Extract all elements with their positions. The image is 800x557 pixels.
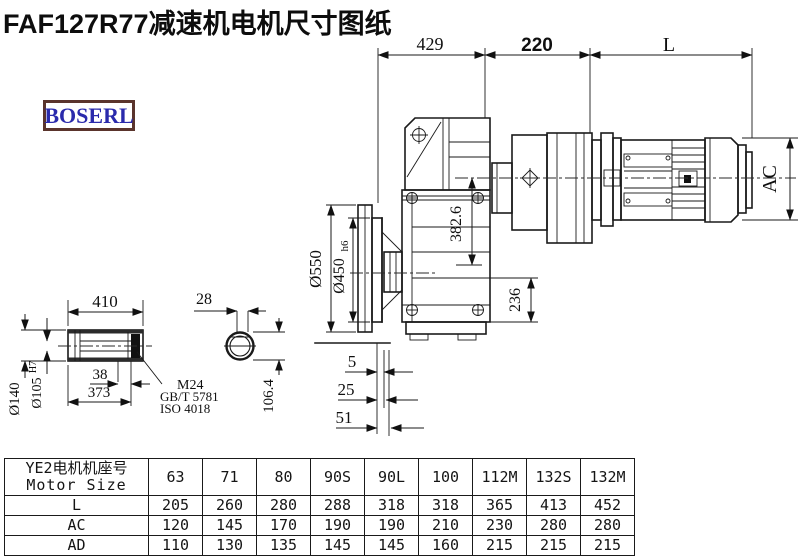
dim-25-label: 25 — [338, 380, 355, 399]
table-cell: 260 — [203, 496, 257, 516]
table-cell: 280 — [581, 516, 635, 536]
gearbox-housing — [350, 118, 490, 340]
drawing-page: FAF127R77减速机电机尺寸图纸 BOSERL 429 220 L — [0, 0, 800, 557]
table-cell: 190 — [365, 516, 419, 536]
dim-140-label: Ø140 — [7, 382, 23, 415]
table-cell: 230 — [473, 516, 527, 536]
header-cn: YE2电机机座号 — [5, 460, 148, 477]
row-label: AD — [5, 536, 149, 556]
dim-ac-label: AC — [759, 165, 781, 193]
dim-105-tolerance: H7 — [28, 361, 39, 373]
dim-429-label: 429 — [417, 34, 444, 54]
column-header: 112M — [473, 459, 527, 496]
column-header: 90L — [365, 459, 419, 496]
motor-adapter — [492, 133, 620, 243]
dim-105-label: Ø105 — [30, 377, 45, 408]
dim-106-label: 106.4 — [261, 379, 277, 413]
header-en: Motor Size — [5, 477, 148, 494]
dim-550-label: Ø550 — [306, 250, 325, 288]
dim-236: 236 — [486, 278, 538, 322]
table-cell: 452 — [581, 496, 635, 516]
dim-410-label: 410 — [92, 292, 118, 311]
table-cell: 288 — [311, 496, 365, 516]
table-cell: 205 — [149, 496, 203, 516]
dim-5-label: 5 — [348, 352, 357, 371]
dim-L-label: L — [663, 34, 675, 56]
table-cell: 280 — [257, 496, 311, 516]
table-cell: 365 — [473, 496, 527, 516]
table-cell: 190 — [311, 516, 365, 536]
dim-flange-spigot: Ø450 h6 — [331, 218, 370, 322]
motor-size-table: YE2电机机座号 Motor Size 63 71 80 90S 90L 100… — [4, 458, 635, 556]
thread-callout-iso: ISO 4018 — [160, 401, 210, 416]
table-cell: 145 — [365, 536, 419, 556]
table-row-L: L 205 260 280 288 318 318 365 413 452 — [5, 496, 635, 516]
dim-382-label: 382.6 — [448, 206, 465, 242]
table-row-AD: AD 110 130 135 145 145 160 215 215 215 — [5, 536, 635, 556]
table-header-row: YE2电机机座号 Motor Size 63 71 80 90S 90L 100… — [5, 459, 635, 496]
table-cell: 318 — [365, 496, 419, 516]
dim-373-label: 373 — [88, 385, 111, 401]
table-cell: 145 — [311, 536, 365, 556]
column-header: 100 — [419, 459, 473, 496]
table-cell: 120 — [149, 516, 203, 536]
column-header: 90S — [311, 459, 365, 496]
dims-bottom-offsets: 5 25 51 — [315, 343, 424, 436]
dim-38-label: 38 — [93, 367, 108, 383]
dim-220-label: 220 — [521, 35, 553, 56]
table-row-AC: AC 120 145 170 190 190 210 230 280 280 — [5, 516, 635, 536]
table-cell: 135 — [257, 536, 311, 556]
column-header: 132S — [527, 459, 581, 496]
column-header: 132M — [581, 459, 635, 496]
table-cell: 413 — [527, 496, 581, 516]
column-header: 71 — [203, 459, 257, 496]
table-cell: 145 — [203, 516, 257, 536]
dim-28-label: 28 — [196, 291, 212, 308]
column-header: 80 — [257, 459, 311, 496]
table-cell: 210 — [419, 516, 473, 536]
hollow-shaft-detail: 410 Ø140 Ø105 H7 38 — [7, 292, 219, 416]
column-header: 63 — [149, 459, 203, 496]
row-label: L — [5, 496, 149, 516]
row-label: AC — [5, 516, 149, 536]
dim-51-label: 51 — [336, 408, 353, 427]
table-cell: 280 — [527, 516, 581, 536]
dim-450-tolerance: h6 — [339, 240, 351, 252]
table-cell: 318 — [419, 496, 473, 516]
table-cell: 215 — [527, 536, 581, 556]
motor — [455, 138, 796, 222]
table-header-motor-size: YE2电机机座号 Motor Size — [5, 459, 149, 496]
dim-450-label: Ø450 — [331, 258, 348, 294]
table-cell: 110 — [149, 536, 203, 556]
dim-236-label: 236 — [507, 288, 524, 312]
table-cell: 215 — [581, 536, 635, 556]
table-cell: 160 — [419, 536, 473, 556]
table-cell: 130 — [203, 536, 257, 556]
table-cell: 170 — [257, 516, 311, 536]
table-cell: 215 — [473, 536, 527, 556]
